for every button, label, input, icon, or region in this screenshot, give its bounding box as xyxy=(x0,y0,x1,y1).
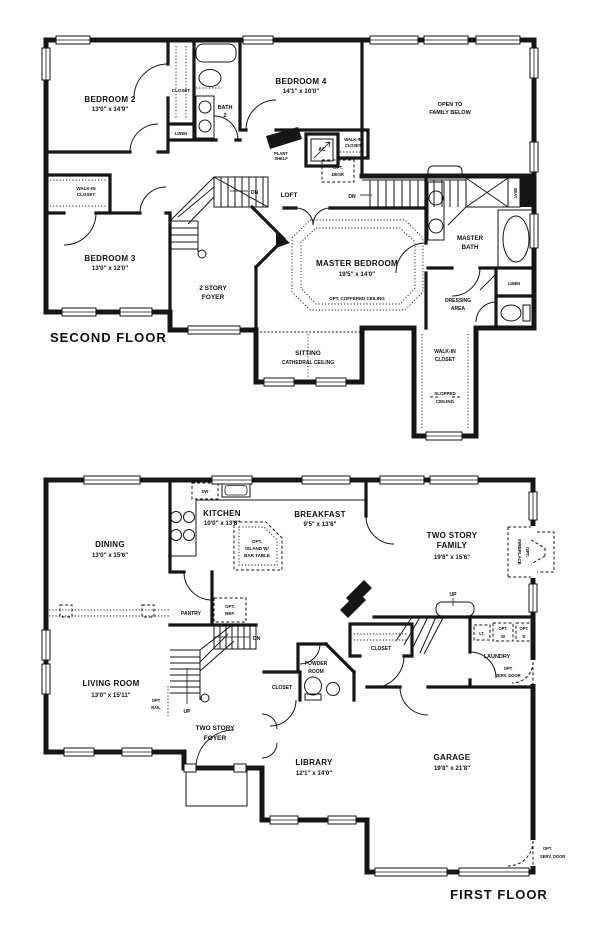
island-l2: ISLAND W/ xyxy=(245,546,269,551)
seat-label: SEAT xyxy=(513,188,518,199)
loft-label: LOFT xyxy=(281,192,298,199)
opt-d-l1: OPT. xyxy=(519,626,528,631)
opt-w-l1: OPT. xyxy=(498,626,507,631)
bath2-number: 2 xyxy=(223,113,226,119)
linen-master-label: LINEN xyxy=(508,281,520,286)
family-l1: TWO STORY xyxy=(427,531,478,540)
ac-label: AC xyxy=(318,147,326,153)
opt-d-l2: D xyxy=(523,634,526,639)
second-floor-title: SECOND FLOOR xyxy=(50,330,167,345)
breakfast-dims: 9'5" x 13'8" xyxy=(304,521,337,528)
opt-rail-l2: RAIL xyxy=(151,705,161,710)
living-dims: 13'0" x 15'11" xyxy=(91,692,131,699)
kitchen-name: KITCHEN xyxy=(203,509,241,518)
opt-ref-outline xyxy=(214,598,246,622)
library-dims: 12'1" x 14'0" xyxy=(296,770,332,777)
first-floor: DW KITCHEN 10'0" x 13'8" BREAKFAST 9'5" … xyxy=(42,476,565,902)
breakfast-name: BREAKFAST xyxy=(294,510,346,519)
lt-label: LT. xyxy=(479,631,484,636)
closet-hall-label: CLOSET xyxy=(371,646,391,652)
sf-foyer-wedge xyxy=(276,231,290,248)
garage-name: GARAGE xyxy=(434,753,471,762)
powder-toilet xyxy=(305,677,322,695)
family-l2: FAMILY xyxy=(437,541,468,550)
dining-dims: 13'0" x 15'6" xyxy=(92,552,128,559)
opt-ref-l2: REF. xyxy=(225,611,235,616)
master-bedroom-name: MASTER BEDROOM xyxy=(316,259,398,268)
walkin-master-l2: CLOSET xyxy=(435,357,455,363)
dn-left-label: DN xyxy=(251,190,259,196)
plant-shelf-l2: SHELF xyxy=(274,156,288,161)
floor-plan-drawing: BEDROOM 2 13'0" x 14'9" CLOSET BATH 2 LI… xyxy=(0,0,600,933)
foyer2-l1: 2 STORY xyxy=(199,285,227,292)
master-toilet xyxy=(501,305,521,321)
powder-l1: POWDER xyxy=(305,661,328,667)
up-main-label: UP xyxy=(184,709,192,715)
library-name: LIBRARY xyxy=(295,758,333,767)
sf-wall-block xyxy=(520,178,534,207)
kitchen-dims: 10'0" x 13'8" xyxy=(204,520,240,527)
serv-garage-l2: SERV. DOOR xyxy=(540,854,565,859)
open-below-l2: FAMILY BELOW xyxy=(429,110,471,116)
bedroom2-dims: 13'0" x 14'9" xyxy=(92,106,128,113)
bath2-toilet xyxy=(199,70,221,87)
walkin-master-l1: WALK-IN xyxy=(434,349,456,355)
slopped-l1: SLOPPED xyxy=(434,391,456,396)
bath2-label: BATH xyxy=(218,105,233,111)
dn-label: DN xyxy=(253,636,261,642)
open-below-l1: OPEN TO xyxy=(438,102,463,108)
dining-name: DINING xyxy=(95,540,125,549)
opt-desk-l2: DESK xyxy=(332,172,345,177)
first-floor-title: FIRST FLOOR xyxy=(450,887,548,902)
opt-w-l2: W xyxy=(501,634,505,639)
walkin-left-l1: WALK-IN xyxy=(76,186,95,191)
powder-sink xyxy=(327,683,340,696)
second-floor-stairs xyxy=(170,166,466,258)
laundry-label: LAUNDRY xyxy=(484,654,511,660)
bedroom2-name: BEDROOM 2 xyxy=(84,95,135,104)
bath2-tub xyxy=(196,44,236,62)
bedroom3-dims: 13'0" x 12'0" xyxy=(92,265,128,272)
walkin-b4-l2: CLOSET xyxy=(345,143,362,148)
closet-foyer-label: CLOSET xyxy=(272,685,292,691)
walkin-b4-l1: WALK-IN xyxy=(344,137,362,142)
pantry-label: PANTRY xyxy=(181,611,202,617)
first-floor-labels: DW KITCHEN 10'0" x 13'8" BREAKFAST 9'5" … xyxy=(82,489,565,902)
opt-desk-l1: OPT. xyxy=(333,165,343,170)
opt-rail-l1: OPT xyxy=(152,698,161,703)
serv-laundry-l1: OPT xyxy=(504,666,513,671)
foyer1-l2: FOYER xyxy=(204,735,227,742)
linen-hall-label: LINEN xyxy=(175,131,187,136)
second-floor: BEDROOM 2 13'0" x 14'9" CLOSET BATH 2 LI… xyxy=(42,36,538,440)
fireplace-l1: OPT. xyxy=(525,547,530,557)
serv-laundry-l2: SERV. DOOR xyxy=(495,673,520,678)
slopped-l2: CEILING xyxy=(436,399,455,404)
foyer2-l2: FOYER xyxy=(202,294,225,301)
living-name: LIVING ROOM xyxy=(82,679,139,688)
master-bath-l2: BATH xyxy=(462,244,479,251)
sitting-name: SITTING xyxy=(295,350,321,357)
floor-plan-page: BEDROOM 2 13'0" x 14'9" CLOSET BATH 2 LI… xyxy=(0,0,600,933)
island-l1: OPT. xyxy=(252,539,262,544)
master-ceiling-note: OPT. COFFERED CEILING xyxy=(329,296,385,301)
walkin-left-l2: CLOSET xyxy=(77,192,96,197)
serv-garage-l1: OPT. xyxy=(543,846,552,851)
dressing-l2: AREA xyxy=(451,306,466,312)
family-dims: 19'6" x 15'6" xyxy=(434,554,470,561)
island-l3: BAR TABLE xyxy=(244,553,270,558)
fireplace-l2: FIREPLACE xyxy=(517,539,522,565)
bedroom4-name: BEDROOM 4 xyxy=(275,77,326,86)
bedroom4-dims: 14'1" x 10'0" xyxy=(283,88,319,95)
opt-ref-l1: OPT. xyxy=(225,604,235,609)
garage-dims: 19'8" x 21'8" xyxy=(434,765,470,772)
front-stoop xyxy=(186,770,247,806)
dressing-l1: DRESSING xyxy=(445,298,471,304)
bedroom2-closet-label: CLOSET xyxy=(172,88,191,93)
powder-l2: ROOM xyxy=(308,669,324,675)
bedroom3-name: BEDROOM 3 xyxy=(84,254,135,263)
sitting-ceiling: CATHEDRAL CEILING xyxy=(282,360,334,366)
master-bath-l1: MASTER xyxy=(457,235,484,242)
up-back-label: UP xyxy=(450,592,458,598)
dn-right-label: DN xyxy=(348,194,356,200)
master-bedroom-dims: 19'5" x 14'0" xyxy=(339,271,375,278)
foyer1-l1: TWO STORY xyxy=(196,725,236,732)
dw-label: DW xyxy=(202,489,209,494)
